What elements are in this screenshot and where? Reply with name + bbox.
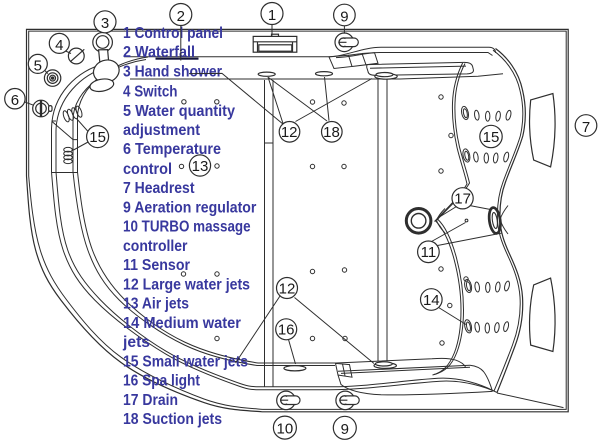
svg-text:15: 15 (89, 129, 106, 146)
svg-text:3: 3 (101, 15, 109, 32)
svg-text:7: 7 (582, 119, 590, 136)
svg-text:2: 2 (177, 8, 185, 25)
svg-text:18: 18 (323, 124, 340, 141)
svg-text:controller: controller (123, 238, 188, 255)
svg-text:17 Drain: 17 Drain (123, 392, 178, 409)
svg-text:4 Switch: 4 Switch (123, 83, 178, 100)
svg-text:3 Hand shower: 3 Hand shower (123, 63, 222, 80)
svg-text:14 Medium water: 14 Medium water (123, 315, 241, 332)
svg-text:14: 14 (423, 292, 440, 309)
svg-text:10: 10 (277, 420, 294, 437)
svg-text:9 Aeration regulator: 9 Aeration regulator (123, 199, 256, 216)
svg-text:13 Air jets: 13 Air jets (123, 296, 189, 313)
svg-text:6: 6 (11, 92, 19, 109)
svg-text:adjustment: adjustment (123, 122, 201, 139)
svg-text:16: 16 (278, 322, 295, 339)
svg-text:jets: jets (122, 334, 150, 351)
svg-text:16 Spa light: 16 Spa light (123, 373, 201, 390)
svg-text:6 Temperature: 6 Temperature (123, 141, 221, 158)
svg-text:9: 9 (340, 8, 348, 25)
svg-text:1 Control panel: 1 Control panel (123, 25, 223, 42)
svg-text:12: 12 (281, 124, 298, 141)
svg-text:18 Suction jets: 18 Suction jets (123, 411, 222, 428)
svg-text:control: control (123, 161, 172, 178)
svg-text:15 Small water jets: 15 Small water jets (123, 353, 248, 370)
svg-text:17: 17 (454, 191, 471, 208)
svg-text:13: 13 (192, 158, 209, 175)
svg-text:12: 12 (279, 280, 296, 297)
svg-text:15: 15 (483, 129, 500, 146)
svg-text:4: 4 (55, 37, 63, 54)
svg-text:10 TURBO massage: 10 TURBO massage (123, 219, 251, 236)
svg-text:11 Sensor: 11 Sensor (123, 257, 190, 274)
svg-text:5: 5 (34, 57, 42, 74)
svg-text:11: 11 (421, 244, 437, 261)
svg-text:1: 1 (268, 7, 276, 24)
svg-text:5 Water quantity: 5 Water quantity (123, 103, 235, 120)
svg-text:7 Headrest: 7 Headrest (123, 180, 195, 197)
svg-text:12 Large water jets: 12 Large water jets (123, 276, 250, 293)
svg-text:9: 9 (341, 421, 349, 438)
